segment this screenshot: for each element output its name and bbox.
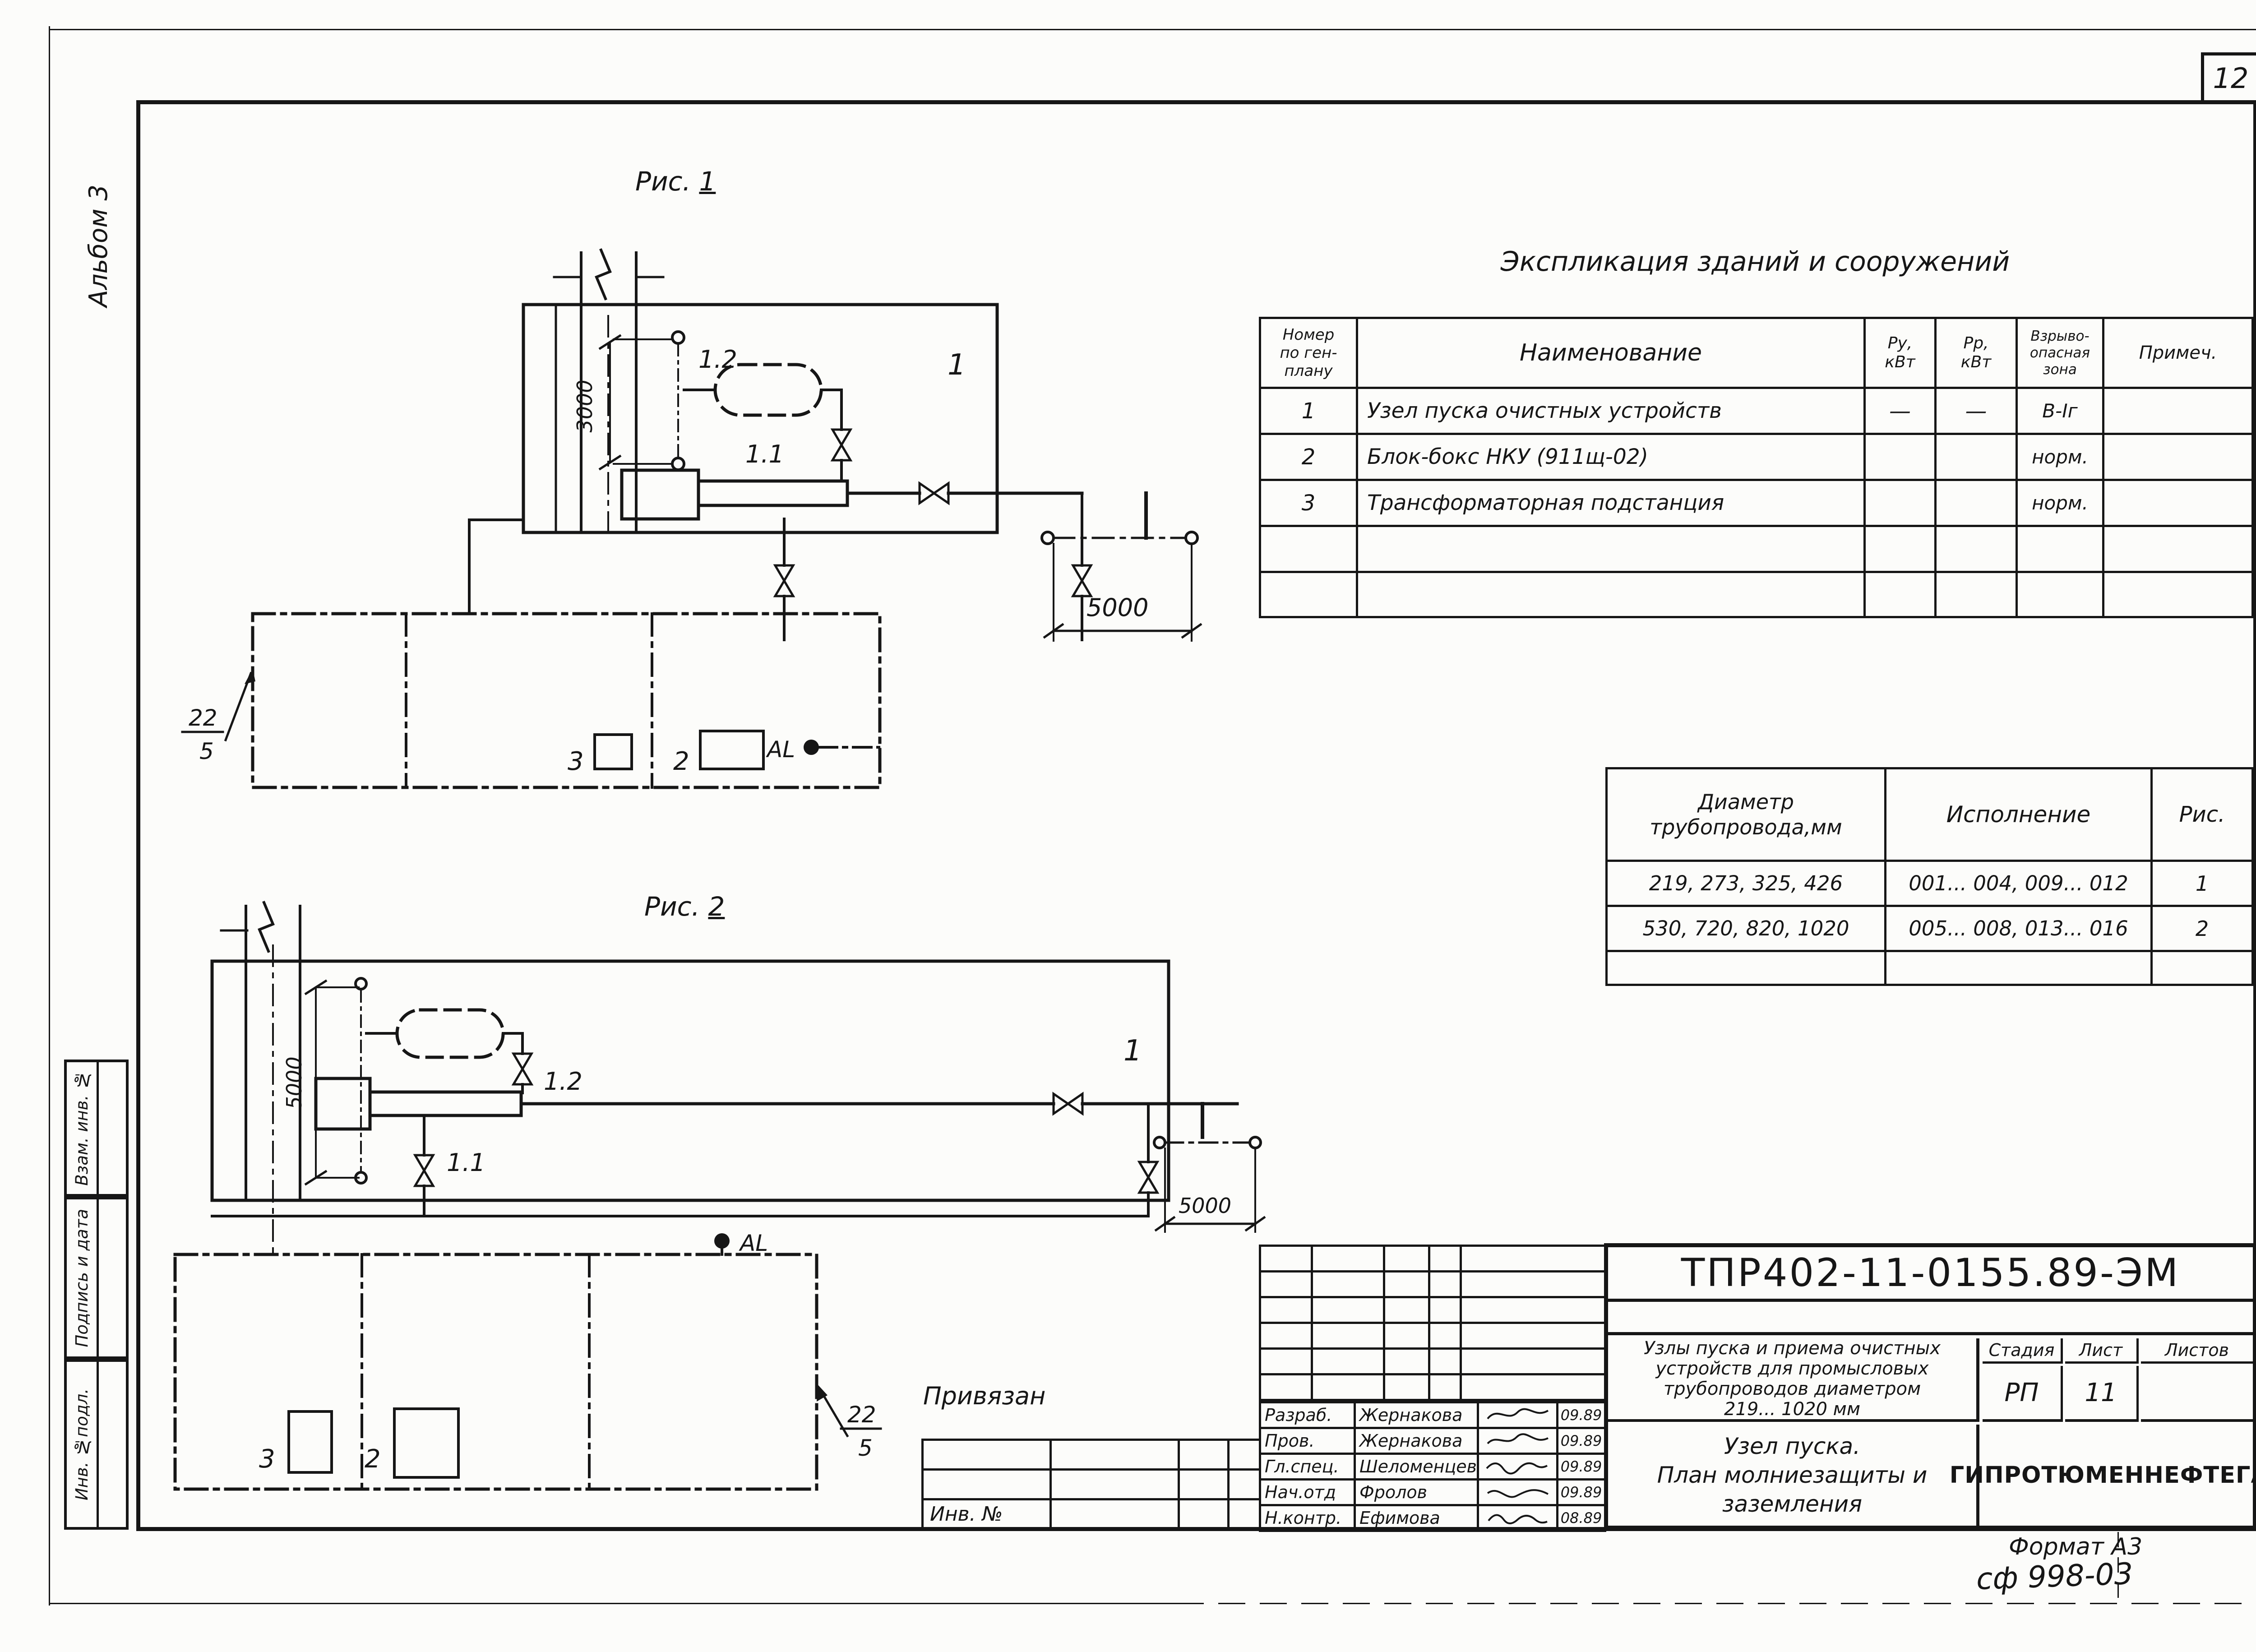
fig1-dim-horizontal: 5000 <box>1086 593 1148 622</box>
fig1-item3: 3 <box>568 747 584 776</box>
fig1-callout-bottom: 5 <box>199 738 214 764</box>
drawing-sheet: 12 Альбом 3 Взам. инв. № Подпись и дата … <box>0 0 2256 1652</box>
pipe-break-icon <box>596 250 610 299</box>
vessel-dashed-icon <box>397 1010 503 1057</box>
fig2-schematic: 1 5000 1.2 <box>212 902 1264 1254</box>
fig1-item2: 2 <box>673 747 689 776</box>
fig1-plan: 22 5 3 2 AL <box>182 614 880 787</box>
valve-icon <box>832 430 851 460</box>
lightning-rod-icon <box>714 1233 730 1249</box>
fig2-item3: 3 <box>259 1444 275 1474</box>
valve-icon <box>920 483 948 503</box>
schematic-linework: 1 3000 1.2 <box>0 0 2256 1652</box>
valve-icon <box>1054 1094 1082 1114</box>
fig1-dim-vertical: 3000 <box>573 379 597 432</box>
fig2-dim-horizontal: 5000 <box>1179 1194 1231 1218</box>
fig2-vent-tag: 1.2 <box>544 1067 582 1096</box>
fig1-vent-tag: 1.2 <box>698 345 737 374</box>
fig1-launcher-tag: 1.1 <box>745 440 784 468</box>
valve-icon <box>415 1155 433 1186</box>
pipe-break-icon <box>259 902 273 951</box>
fig2-callout-top: 22 <box>847 1402 876 1428</box>
valve-icon <box>1073 565 1091 596</box>
fig2-dim-vertical: 5000 <box>282 1056 306 1109</box>
valve-icon <box>513 1054 532 1084</box>
fig2-al-label: AL <box>739 1230 768 1256</box>
fig1-building-tag: 1 <box>948 348 966 382</box>
fig1-al-label: AL <box>766 736 795 763</box>
valve-icon <box>775 565 793 596</box>
fig1-callout-top: 22 <box>189 705 217 731</box>
fig2-plan: AL 3 2 22 5 <box>175 1230 881 1489</box>
lightning-rod-icon <box>804 740 819 755</box>
fig2-launcher-tag: 1.1 <box>447 1148 485 1177</box>
valve-icon <box>1139 1162 1157 1193</box>
fig2-item2: 2 <box>365 1444 381 1474</box>
fig2-building-tag: 1 <box>1123 1034 1142 1068</box>
fig1-schematic: 1 3000 1.2 <box>469 250 1201 641</box>
fig2-callout-bottom: 5 <box>858 1435 873 1461</box>
